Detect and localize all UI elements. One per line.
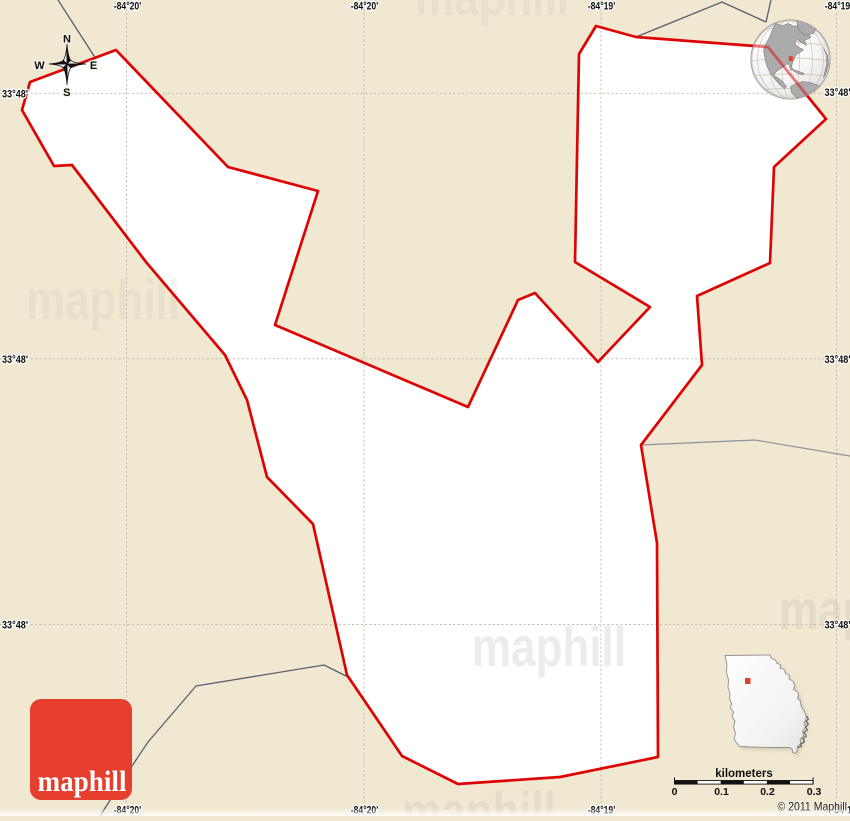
svg-text:maphill: maphill [26, 268, 180, 331]
svg-text:maphill: maphill [38, 765, 127, 798]
svg-text:33°48': 33°48' [2, 354, 28, 366]
svg-text:0: 0 [672, 786, 678, 798]
svg-text:kilometers: kilometers [715, 768, 773, 780]
svg-text:maphill: maphill [415, 0, 569, 27]
svg-text:33°48': 33°48' [2, 620, 28, 632]
svg-text:33°48': 33°48' [825, 87, 850, 99]
svg-text:33°48': 33°48' [825, 354, 850, 366]
svg-text:0.2: 0.2 [760, 786, 775, 798]
svg-text:0.3: 0.3 [807, 786, 822, 798]
svg-text:-84°20': -84°20' [114, 1, 142, 13]
svg-text:33°48': 33°48' [2, 89, 28, 101]
svg-text:0.1: 0.1 [714, 786, 729, 798]
svg-text:33°48': 33°48' [825, 620, 850, 632]
svg-text:W: W [34, 60, 45, 72]
svg-text:E: E [90, 60, 97, 72]
svg-text:-84°19': -84°19' [825, 1, 850, 13]
svg-text:N: N [63, 34, 71, 46]
svg-text:-84°19': -84°19' [588, 1, 616, 13]
svg-text:S: S [63, 87, 70, 99]
svg-text:-84°20': -84°20' [351, 1, 379, 13]
